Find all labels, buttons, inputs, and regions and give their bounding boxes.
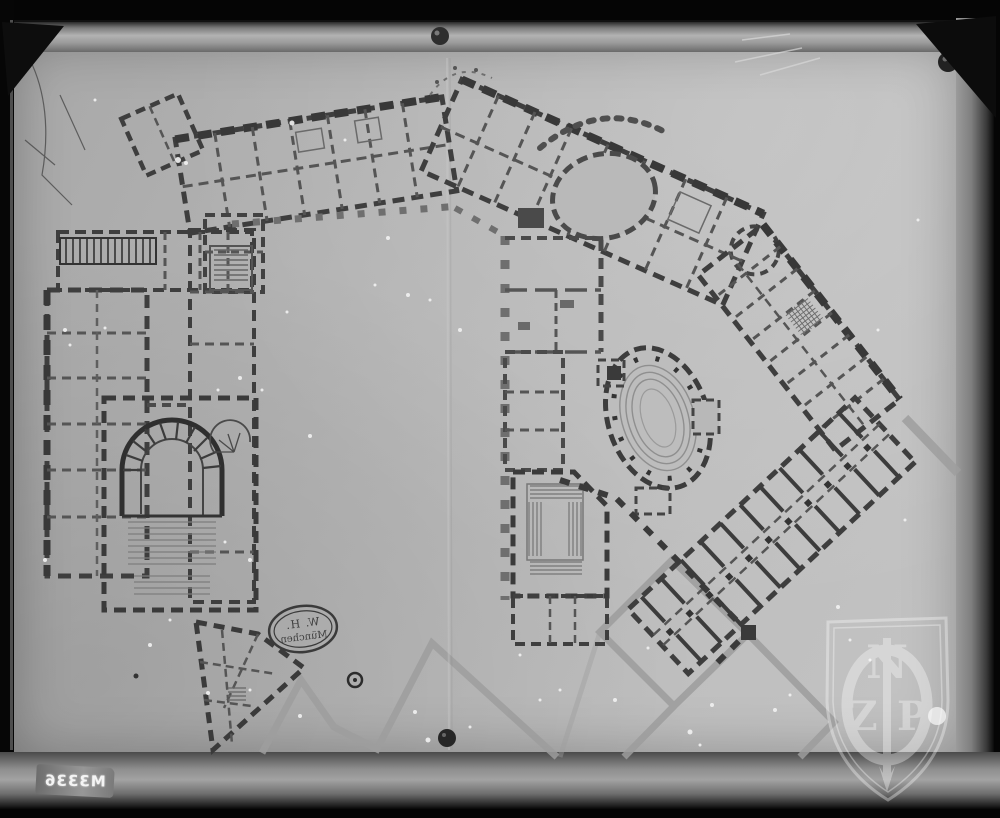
watermark-letter-left: Z [848,693,877,740]
watermark-letter-right: P [897,693,927,740]
watermark-letter-top: N [866,635,908,689]
plate-number-text: M3336 [44,771,106,790]
plate-number-label: M3336 [35,764,114,798]
archive-watermark-shield: N Z P [0,0,1000,818]
photograph-mount: W. H. München [0,0,1000,818]
